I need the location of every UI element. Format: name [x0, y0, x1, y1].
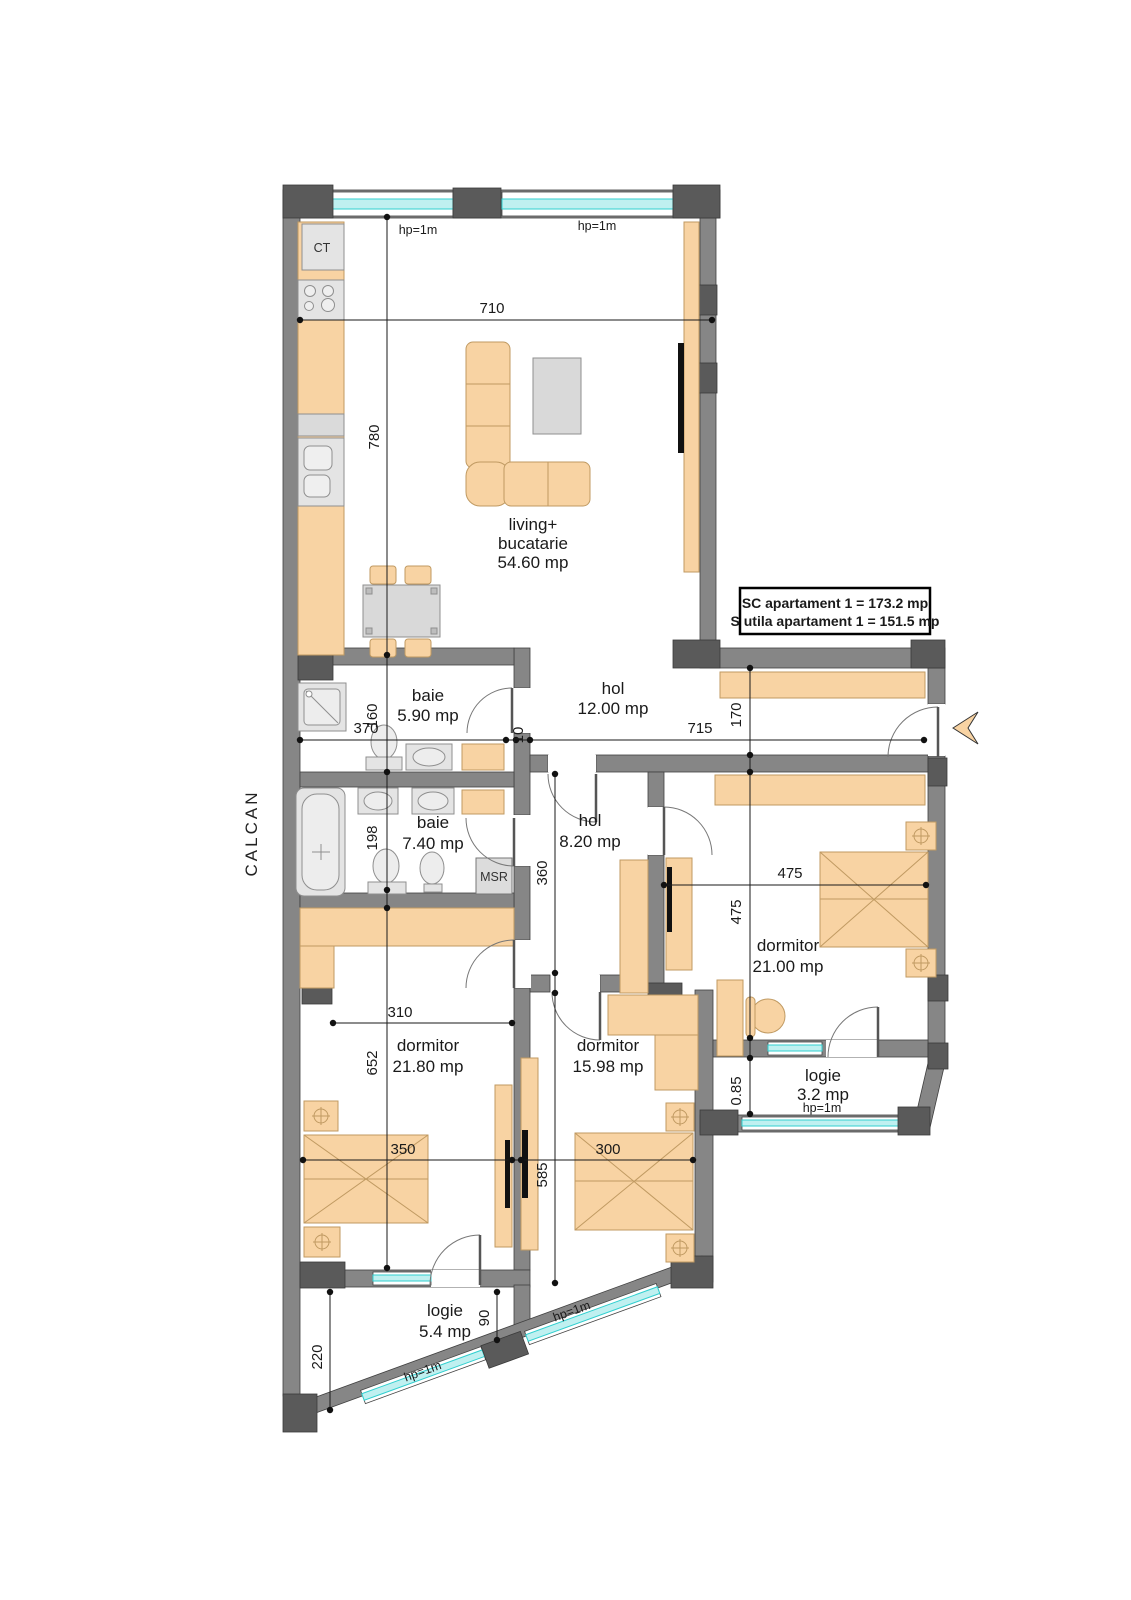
dim-170: 170 [728, 702, 745, 727]
hol-wardrobe [720, 672, 925, 698]
dormitor3-cabinet [608, 995, 698, 1035]
wall-spine [514, 733, 530, 815]
dormitor1-wardrobe [715, 775, 925, 805]
dim-085: 0.85 [728, 1076, 745, 1105]
desk-chair [746, 997, 785, 1037]
room-label-baie-2: baie [417, 813, 449, 832]
room-area-baie-2: 7.40 mp [402, 834, 463, 853]
dim-198: 198 [364, 825, 381, 850]
floor-plan-drawing: living+bucatarie54.60 mpbaie5.90 mphol12… [0, 0, 1131, 1600]
wardrobe-bar [505, 1140, 510, 1208]
msr-label: MSR [480, 870, 508, 884]
dining-table [363, 585, 440, 637]
room-area-living: 54.60 mp [498, 553, 569, 572]
dim-90: 90 [476, 1310, 493, 1327]
window-dorm1-logie [768, 1042, 822, 1055]
info-box-line1: SC apartament 1 = 173.2 mp [742, 595, 928, 611]
dormitor2-top-wardrobe [300, 908, 514, 946]
window-logie1 [742, 1117, 910, 1130]
room-label-logie-2: logie [427, 1301, 463, 1320]
dim-160: 160 [364, 703, 381, 728]
dim-310: 310 [387, 1004, 412, 1021]
window-height-label: hp=1m [803, 1101, 842, 1115]
sink-baie2-2 [412, 788, 454, 814]
bed-dormitor2 [304, 1101, 428, 1257]
wall-hol1-bottom [530, 755, 548, 772]
counter-segment [298, 414, 344, 436]
window-living-2 [502, 192, 673, 216]
door-arc-dormitor3 [552, 992, 600, 1040]
dim-300: 300 [595, 1141, 620, 1158]
room-area-hol-2: 8.20 mp [559, 832, 620, 851]
baie2-cabinet [462, 790, 504, 814]
dim-475-h: 475 [777, 865, 802, 882]
dim-710: 710 [479, 300, 504, 317]
room-area-baie-1: 5.90 mp [397, 706, 458, 725]
room-label-dormitor-3: dormitor [577, 1036, 640, 1055]
room-label-hol-1: hol [602, 679, 625, 698]
desk [717, 980, 743, 1056]
baie1-cabinet [462, 744, 504, 770]
wall-right-upper [928, 668, 945, 704]
living-wall-cabinet [684, 222, 699, 572]
wall-hol-top [700, 648, 945, 668]
window-dorm2 [373, 1272, 431, 1285]
dim-780: 780 [366, 424, 383, 449]
room-area-dormitor-2: 21.80 mp [393, 1057, 464, 1076]
room-label-baie-1: baie [412, 686, 444, 705]
dim-10: 10 [510, 727, 527, 744]
tv [678, 343, 684, 453]
wall-dorm1-left [648, 772, 664, 807]
info-box-line2: S utila apartament 1 = 151.5 mp [731, 613, 940, 629]
room-label-hol-2: hol [579, 811, 602, 830]
dim-475-v: 475 [728, 899, 745, 924]
wall-baie-mid [300, 772, 514, 787]
entrance-arrow-icon [953, 712, 978, 744]
calcan-label: CALCAN [242, 790, 261, 877]
dim-360: 360 [534, 860, 551, 885]
wall-spine [514, 648, 530, 688]
room-label-dormitor-2: dormitor [397, 1036, 460, 1055]
door-arc-dormitor2 [466, 940, 514, 988]
dim-220: 220 [309, 1344, 326, 1369]
sink-baie2-1 [358, 788, 398, 814]
room-area-dormitor-1: 21.00 mp [753, 957, 824, 976]
wall-hol2-bottom [530, 975, 550, 992]
dormitor3-cabinet [655, 1035, 698, 1090]
bed-dormitor3 [575, 1103, 694, 1262]
door-arc-baie1 [467, 688, 512, 733]
bathtub [296, 788, 345, 896]
door-arc-dormitor1 [664, 807, 712, 855]
bidet-baie2 [420, 852, 444, 892]
stove [298, 280, 344, 320]
dim-585: 585 [534, 1162, 551, 1187]
furniture [298, 222, 978, 1262]
wall-dorm1-left [648, 855, 664, 987]
window-living-1 [332, 192, 453, 216]
bed-dormitor1 [820, 822, 936, 977]
wardrobe-bar [667, 867, 672, 932]
vanity-baie1 [406, 744, 452, 770]
wall-right-living [700, 218, 716, 648]
dim-652: 652 [364, 1050, 381, 1075]
room-label-living: living+ [509, 515, 558, 534]
room-area-logie-2: 5.4 mp [419, 1322, 471, 1341]
window-height-label: hp=1m [578, 219, 617, 233]
boiler-label: CT [314, 241, 331, 255]
wardrobe-bar [522, 1130, 528, 1198]
dormitor2-top-wardrobe [300, 946, 334, 988]
shower [298, 683, 346, 731]
dim-715: 715 [687, 720, 712, 737]
room-label-logie-1: logie [805, 1066, 841, 1085]
dim-350: 350 [390, 1141, 415, 1158]
coffee-table [533, 358, 581, 434]
wall-right-main [928, 756, 945, 1063]
wall-hol1-bottom [596, 755, 928, 772]
window-height-label: hp=1m [399, 223, 438, 237]
wall-spine [514, 866, 530, 940]
room-area-hol-1: 12.00 mp [578, 699, 649, 718]
kitchen-sink [298, 438, 344, 506]
floor-plan-page: living+bucatarie54.60 mpbaie5.90 mphol12… [0, 0, 1131, 1600]
hol2-wardrobe [620, 860, 648, 993]
room-label-dormitor-1: dormitor [757, 936, 820, 955]
room-label-living: bucatarie [498, 534, 568, 553]
room-area-dormitor-3: 15.98 mp [573, 1057, 644, 1076]
